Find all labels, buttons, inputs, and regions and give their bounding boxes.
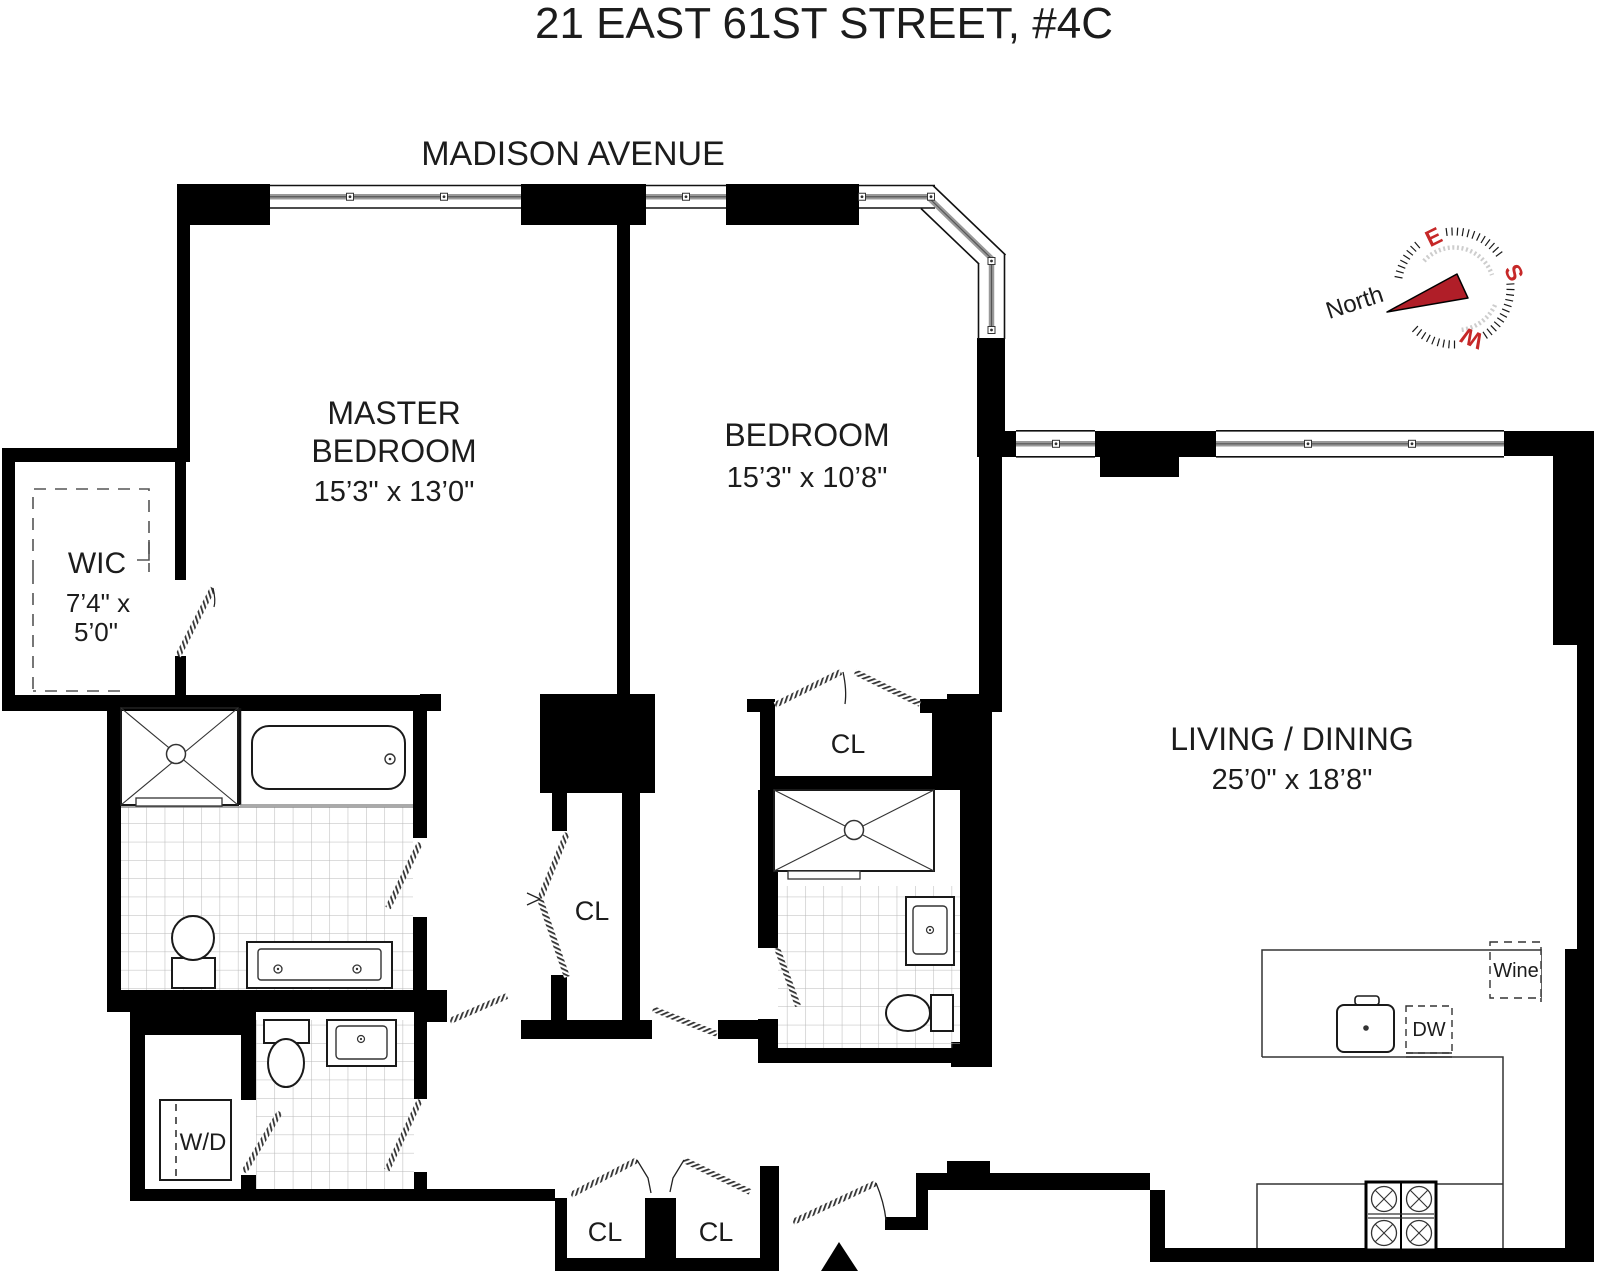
svg-text:WIC: WIC — [68, 547, 126, 580]
svg-text:W/D: W/D — [180, 1129, 227, 1156]
svg-text:Wine: Wine — [1493, 960, 1539, 982]
svg-text:5’0": 5’0" — [74, 617, 118, 647]
svg-text:MASTER: MASTER — [327, 395, 460, 431]
svg-text:BEDROOM: BEDROOM — [311, 433, 476, 469]
svg-text:BEDROOM: BEDROOM — [724, 417, 889, 453]
svg-text:15’3" x 10’8": 15’3" x 10’8" — [727, 462, 888, 494]
svg-text:21 EAST 61ST STREET, #4C: 21 EAST 61ST STREET, #4C — [535, 0, 1113, 48]
svg-text:25’0" x 18’8": 25’0" x 18’8" — [1212, 764, 1373, 796]
svg-text:CL: CL — [588, 1217, 623, 1247]
svg-text:15’3" x 13’0": 15’3" x 13’0" — [314, 476, 475, 508]
svg-text:MADISON AVENUE: MADISON AVENUE — [421, 135, 725, 173]
svg-text:7’4" x: 7’4" x — [66, 588, 130, 618]
svg-text:CL: CL — [699, 1217, 734, 1247]
svg-text:CL: CL — [831, 729, 866, 759]
svg-text:CL: CL — [575, 896, 610, 926]
svg-text:DW: DW — [1412, 1019, 1445, 1041]
svg-text:LIVING / DINING: LIVING / DINING — [1170, 721, 1414, 757]
